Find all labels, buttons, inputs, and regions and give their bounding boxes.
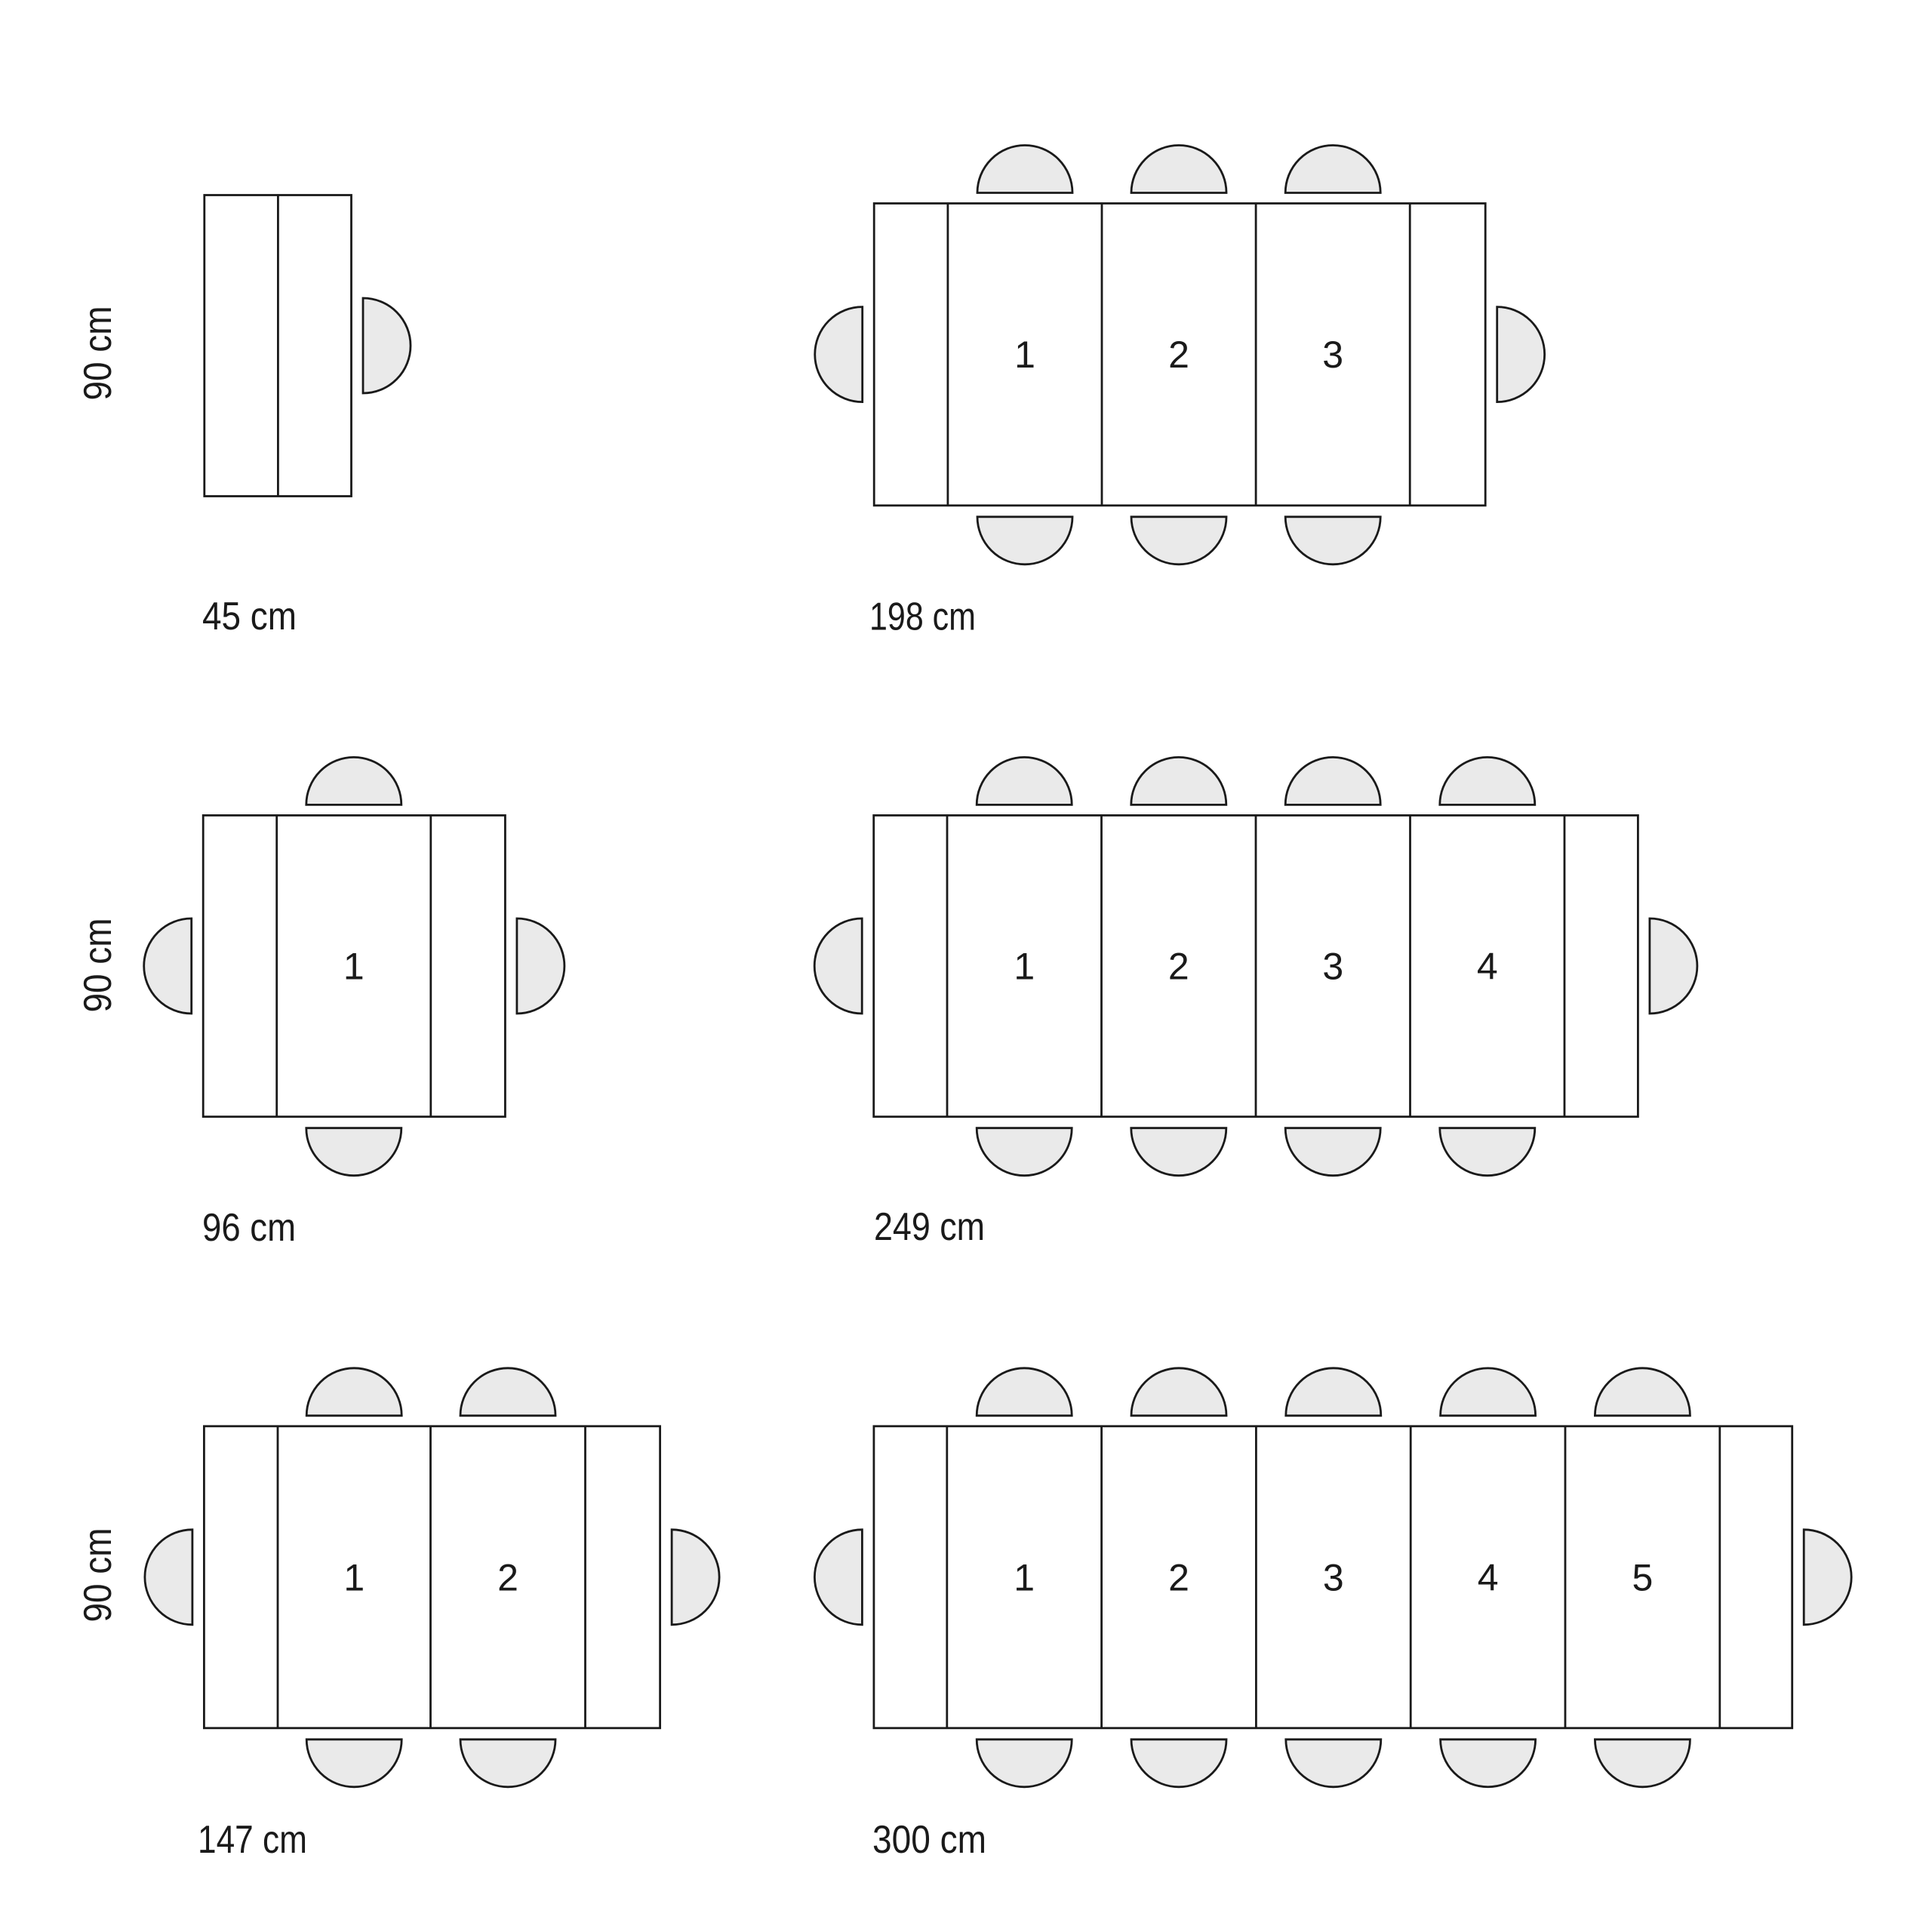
svg-text:249 cm: 249 cm	[874, 1205, 985, 1249]
svg-text:300 cm: 300 cm	[872, 1818, 986, 1862]
svg-text:1: 1	[1014, 334, 1035, 376]
svg-text:1: 1	[343, 946, 365, 988]
svg-text:4: 4	[1477, 946, 1498, 988]
svg-text:96 cm: 96 cm	[202, 1206, 296, 1250]
svg-text:4: 4	[1478, 1556, 1499, 1598]
svg-text:3: 3	[1323, 1556, 1344, 1598]
svg-text:90 cm: 90 cm	[76, 306, 120, 401]
svg-text:2: 2	[1168, 946, 1189, 988]
svg-text:2: 2	[497, 1556, 518, 1598]
svg-text:198 cm: 198 cm	[869, 595, 976, 639]
svg-text:1: 1	[1014, 1556, 1035, 1598]
svg-text:1: 1	[1014, 946, 1035, 988]
svg-text:90 cm: 90 cm	[76, 918, 120, 1013]
svg-text:147 cm: 147 cm	[198, 1818, 307, 1862]
svg-text:3: 3	[1322, 334, 1343, 376]
svg-text:3: 3	[1322, 946, 1343, 988]
svg-text:90 cm: 90 cm	[76, 1528, 120, 1623]
svg-text:45 cm: 45 cm	[202, 595, 297, 638]
svg-text:2: 2	[1168, 1556, 1189, 1598]
svg-text:2: 2	[1168, 334, 1189, 376]
svg-text:5: 5	[1632, 1556, 1653, 1598]
svg-text:1: 1	[343, 1556, 365, 1598]
